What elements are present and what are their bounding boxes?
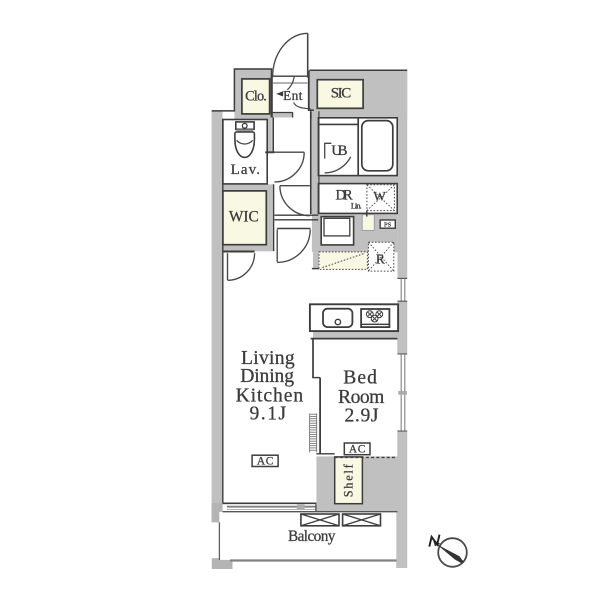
svg-text:AC: AC bbox=[349, 444, 365, 456]
svg-text:R: R bbox=[376, 251, 385, 266]
svg-text:Bed: Bed bbox=[343, 368, 377, 389]
svg-text:Clo.: Clo. bbox=[245, 88, 267, 104]
svg-text:PS: PS bbox=[384, 222, 392, 229]
svg-text:Balcony: Balcony bbox=[288, 528, 336, 545]
svg-text:Lav.: Lav. bbox=[231, 162, 260, 178]
svg-text:2.9J: 2.9J bbox=[344, 405, 378, 426]
svg-text:WIC: WIC bbox=[229, 208, 259, 225]
svg-text:Dining: Dining bbox=[240, 366, 294, 387]
svg-text:AC: AC bbox=[257, 456, 273, 468]
svg-text:W: W bbox=[373, 189, 386, 204]
svg-text:Lin.: Lin. bbox=[351, 201, 362, 211]
svg-text:UB: UB bbox=[331, 143, 347, 159]
svg-text:9.1J: 9.1J bbox=[249, 404, 286, 425]
svg-text:Ent: Ent bbox=[283, 88, 303, 103]
svg-text:Shelf: Shelf bbox=[342, 463, 356, 497]
svg-text:SIC: SIC bbox=[331, 86, 352, 102]
